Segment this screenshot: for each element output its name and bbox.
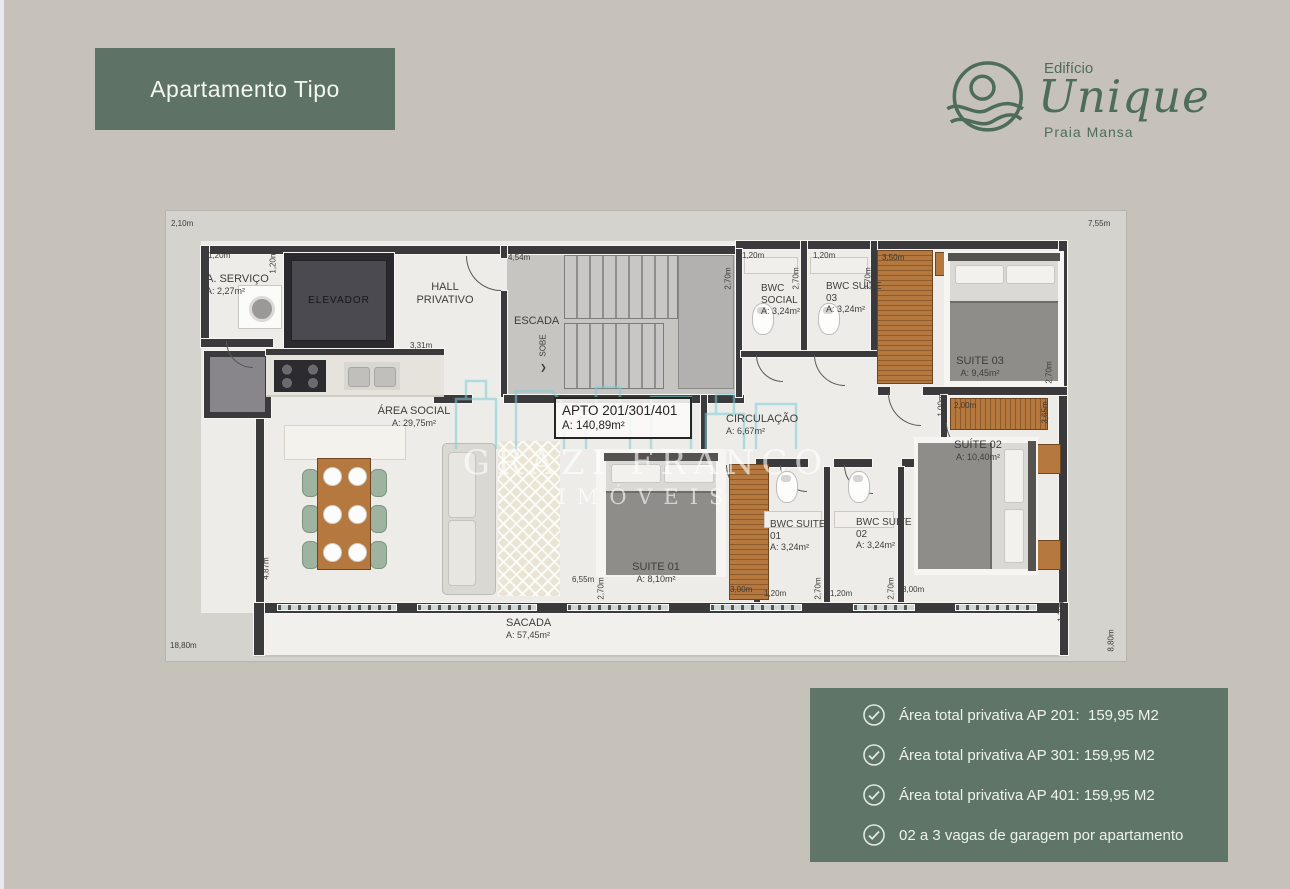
kitchen-sink (344, 362, 400, 390)
chair (302, 469, 319, 497)
dim-label: 1,20m (269, 246, 278, 280)
check-circle-icon (862, 743, 886, 767)
room-label-suite03: SUITE 03 A: 9,45m² (928, 355, 1032, 378)
brand-logo: Edifício Unique Praia Mansa (942, 50, 1232, 150)
room-label-circulacao: CIRCULAÇÃO A: 6,67m² (726, 413, 818, 436)
dim-label: 3,00m (730, 585, 752, 594)
plate (348, 505, 367, 524)
floor-plan: ELEVADOR SOBE (165, 210, 1127, 662)
dim-label: 2,70m (887, 572, 896, 606)
window (418, 605, 536, 610)
chair (302, 541, 319, 569)
window (568, 605, 668, 610)
dim-label: 2,00m (954, 401, 976, 410)
pillow (955, 265, 1004, 284)
dim-label: 7,55m (1088, 219, 1110, 228)
plate (323, 467, 342, 486)
dim-label: 3,50m (882, 253, 904, 262)
wardrobe (878, 251, 932, 383)
check-circle-icon (862, 823, 886, 847)
window (278, 605, 396, 610)
dim-label: 18,80m (170, 641, 197, 650)
watermark-line2: IMÓVEIS (416, 485, 876, 509)
room-label-servico: A. SERVIÇO A: 2,27m² (206, 273, 298, 296)
info-row: Área total privativa AP 401: 159,95 M2 (810, 775, 1228, 815)
dim-label: 2,10m (171, 219, 193, 228)
room-label-bwc-suite03: BWC SUITE 03 A: 3,24m² (826, 281, 882, 314)
dim-label: 3,65m (1041, 396, 1050, 430)
room-label-hall: HALL PRIVATIVO (406, 281, 484, 306)
room-label-escada: ESCADA (514, 315, 559, 328)
window (854, 605, 914, 610)
wall (254, 603, 264, 655)
check-circle-icon (862, 703, 886, 727)
logo-subtitle: Praia Mansa (1044, 124, 1134, 140)
check-circle-icon (862, 783, 886, 807)
dim-label: 2,70m (597, 572, 606, 606)
dim-label: 2,70m (864, 262, 873, 296)
dim-label: 4,87m (262, 552, 271, 586)
dim-label: 1,20m (764, 589, 786, 598)
dim-label: 2,70m (1045, 356, 1054, 390)
apartment-id-box: APTO 201/301/401 A: 140,89m² (554, 397, 692, 439)
balcony-floor (254, 613, 1068, 656)
dim-label: 4,54m (508, 253, 530, 262)
elevator-label: ELEVADOR (308, 295, 370, 306)
logo-text: Edifício Unique Praia Mansa (1038, 54, 1232, 146)
wall (736, 241, 1067, 249)
watermark: GRAZI FRANCO IMÓVEIS (416, 443, 876, 509)
dim-label: 1,20m (1057, 594, 1066, 628)
stove (274, 360, 326, 392)
plate (323, 505, 342, 524)
room-label-bwc-suite01: BWC SUITE 01 A: 3,24m² (770, 519, 828, 552)
plate (348, 467, 367, 486)
chair (370, 469, 387, 497)
room-label-sacada: SACADA A: 57,45m² (506, 617, 551, 640)
chair (370, 541, 387, 569)
pillow (1006, 265, 1055, 284)
left-edge-strip (0, 0, 4, 889)
info-item: 02 a 3 vagas de garagem por apartamento (899, 827, 1183, 844)
info-item: Área total privativa AP 201: 159,95 M2 (899, 707, 1159, 724)
page-title-banner: Apartamento Tipo (95, 48, 395, 130)
info-item: Área total privativa AP 401: 159,95 M2 (899, 787, 1155, 804)
wall (201, 246, 741, 254)
dim-label: 1,20m (813, 251, 835, 260)
pillow (1004, 509, 1024, 563)
chair (370, 505, 387, 533)
watermark-line1: GRAZI FRANCO (416, 443, 876, 483)
room-label-suite01: SUITE 01 A: 8,10m² (604, 561, 708, 584)
info-row: Área total privativa AP 201: 159,95 M2 (810, 695, 1228, 735)
page-title: Apartamento Tipo (150, 76, 340, 103)
room-label-area-social: ÁREA SOCIAL A: 29,75m² (358, 405, 470, 428)
dim-label: 1,00m (937, 389, 946, 423)
info-item: Área total privativa AP 301: 159,95 M2 (899, 747, 1155, 764)
info-box: Área total privativa AP 201: 159,95 M2 Á… (810, 688, 1228, 862)
dim-label: 2,70m (814, 572, 823, 606)
room-label-bwc-suite02: BWC SUITE 02 A: 3,24m² (856, 517, 914, 550)
wall (501, 246, 507, 258)
dim-label: 3,31m (410, 341, 432, 350)
dim-label: 1,20m (830, 589, 852, 598)
room-label-bwc-social: BWC SOCIAL A: 3,24m² (761, 283, 811, 316)
stairs-up-label: SOBE (539, 329, 548, 363)
wall (201, 246, 209, 346)
dim-label: 1,20m (742, 251, 764, 260)
info-row: Área total privativa AP 301: 159,95 M2 (810, 735, 1228, 775)
plate (348, 543, 367, 562)
dim-label: 3,00m (902, 585, 924, 594)
balcony-edge (254, 655, 1068, 657)
logo-name: Unique (1038, 70, 1210, 123)
bed-headboard (948, 253, 1060, 261)
info-row: 02 a 3 vagas de garagem por apartamento (810, 815, 1228, 855)
plate (323, 543, 342, 562)
room-label-suite02: SUÍTE 02 A: 10,40m² (926, 439, 1030, 462)
wave-circle-icon (942, 56, 1030, 144)
kitchen-island (284, 425, 406, 460)
dim-label: 2,70m (792, 262, 801, 296)
window (711, 605, 801, 610)
elevator-shaft: ELEVADOR (284, 253, 394, 348)
dim-label: 6,55m (572, 575, 594, 584)
dim-label: 8,80m (1107, 624, 1116, 658)
dim-label: 2,70m (724, 262, 733, 296)
window (956, 605, 1036, 610)
dim-label: 1,20m (208, 251, 230, 260)
stairs-upper-flight (564, 255, 678, 319)
chair (302, 505, 319, 533)
